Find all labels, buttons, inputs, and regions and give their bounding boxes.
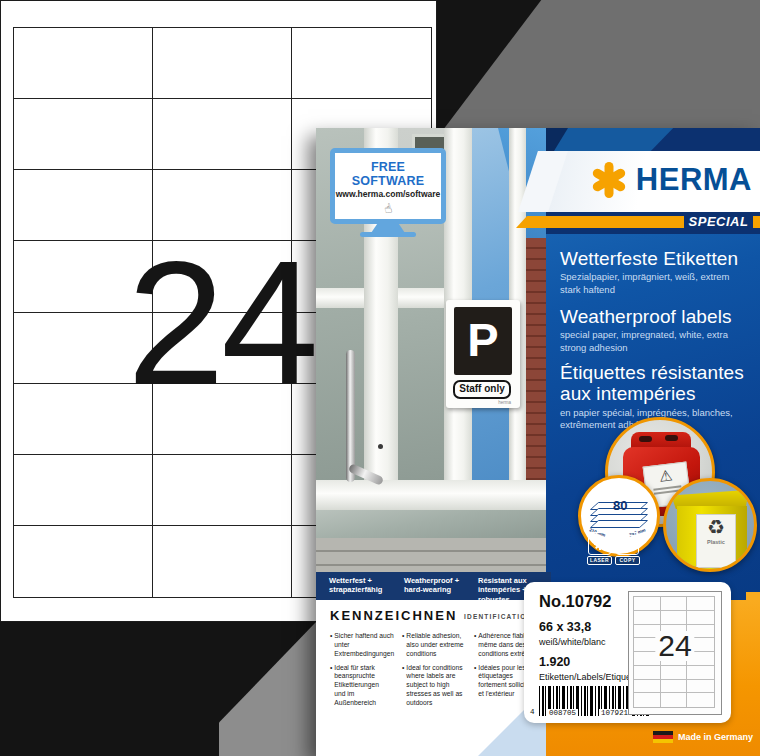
bin-label-text: Plastic [697, 539, 735, 545]
package-front: FREE SOFTWARE www.herma.com/software ☝ P… [316, 128, 760, 756]
product-shot: 24 FREE SOFTWARE www. [0, 0, 760, 756]
band-diagonal [636, 128, 760, 151]
subtitle-de-text: Spezialpapier, imprägniert, weiß, extrem… [560, 271, 738, 296]
laser-compatible-icon: LASER [587, 532, 612, 565]
german-flag-icon [653, 731, 673, 743]
hand-cursor-icon: ☝ [382, 200, 393, 216]
label-cell [634, 680, 661, 694]
orange-stripe-end [753, 216, 760, 228]
recycling-bin-circle: ♻ Plastic [663, 478, 757, 572]
keyhole [378, 444, 383, 449]
identification-column-de: •Sicher haftend auch unter Extrembedingu… [330, 632, 388, 713]
product-info-panel: No.10792 66 x 33,8 weiß/white/blanc 1.92… [524, 582, 731, 723]
door-handle [346, 350, 355, 482]
recycle-icon: ♻ [697, 515, 735, 539]
label-cell [661, 597, 688, 611]
laser-icon [588, 532, 611, 555]
band-diagonal [546, 128, 586, 151]
herma-asterisk-icon [590, 161, 628, 199]
label-cell [687, 597, 714, 611]
entrance-steps [316, 538, 546, 572]
bullet-text: Reliable adhesion, also under extreme co… [406, 632, 464, 659]
feature-de: Wetterfest + strapazierfähig [329, 576, 395, 595]
recycling-label: ♻ Plastic [696, 514, 736, 568]
copy-icon [616, 532, 639, 555]
bullet-text: Ideal for conditions where labels are su… [406, 664, 464, 708]
warning-triangle-icon: ⚠ [645, 465, 689, 486]
monitor-screen: FREE SOFTWARE www.herma.com/software ☝ [330, 148, 446, 224]
product-number: No.10792 [539, 592, 611, 611]
title-en: Weatherproof labels special paper, impre… [560, 306, 756, 354]
parking-letter: P [454, 307, 512, 375]
made-in-label: Made in Germany [678, 732, 753, 742]
label-cell [14, 526, 153, 597]
orange-corner-notch [746, 592, 760, 600]
label-cell [153, 28, 292, 99]
herma-logo: HERMA [590, 161, 752, 199]
title-en-text: Weatherproof labels [560, 306, 756, 327]
barcode-digits-right: 107921 [599, 709, 630, 717]
free-software-sign: FREE SOFTWARE www.herma.com/software ☝ [330, 148, 446, 240]
label-color: weiß/white/blanc [539, 637, 606, 647]
background-gray-bottom-left [219, 622, 316, 756]
canister-slot [665, 435, 678, 441]
free-software-title: FREE SOFTWARE [335, 160, 441, 188]
orange-stripe [516, 216, 684, 228]
glass-panel [316, 510, 546, 538]
identification-heading: KENNZEICHNEN [330, 608, 457, 623]
label-size: 66 x 33,8 [539, 620, 591, 634]
title-de: Wetterfeste Etiketten Spezialpapier, imp… [560, 248, 756, 296]
feature-en: Weatherproof + hard-wearing [404, 576, 470, 595]
label-count: 24 [127, 235, 317, 411]
label-cell [634, 597, 661, 611]
label-cell [14, 455, 153, 526]
bullet-text: Ideal für stark beanspruchte Etikettieru… [334, 664, 388, 708]
copy-compatible-icon: COPY [615, 532, 640, 565]
free-software-url: www.herma.com/software [335, 189, 441, 199]
door-crossbar [316, 480, 546, 510]
special-label: SPECIAL [685, 212, 752, 231]
identification-column-en: •Reliable adhesion, also under extreme c… [402, 632, 464, 713]
top-band [546, 128, 760, 151]
label-cell [661, 680, 688, 694]
herma-wordmark: HERMA [636, 162, 752, 198]
parking-sign: P Staff only herma [446, 300, 520, 408]
label-cell [687, 666, 714, 680]
copy-icon-label: COPY [615, 556, 640, 565]
barcode-digits-left: 008705 [547, 709, 578, 717]
label-cell [14, 99, 153, 170]
label-cell [153, 455, 292, 526]
label-quantity: 1.920 [539, 655, 570, 669]
label-cell [687, 693, 714, 707]
label-cell [634, 611, 661, 625]
sign-brand-mark: herma [498, 400, 511, 405]
features-band: Wetterfest + strapazierfähig Weatherproo… [316, 572, 551, 600]
canister-slot [639, 436, 652, 442]
title-de-text: Wetterfeste Etiketten [560, 248, 756, 269]
staff-only-label: Staff only [453, 380, 511, 399]
logo-band: HERMA [546, 151, 760, 212]
label-cell [14, 28, 153, 99]
laser-icon-label: LASER [587, 556, 612, 565]
label-cell [153, 526, 292, 597]
label-cell [634, 666, 661, 680]
sheet-preview: 24 [628, 591, 722, 715]
bullet-text: Sicher haftend auch unter Extrembedingun… [334, 632, 394, 659]
label-cell [687, 680, 714, 694]
label-cell [153, 99, 292, 170]
label-cell [661, 666, 688, 680]
background-gray-top-right [443, 0, 760, 130]
subtitle-en-text: special paper, impregnated, white, extra… [560, 329, 732, 354]
monitor-base [360, 232, 416, 237]
badge-count: 80 [613, 498, 627, 513]
identification-subheading: IDENTIFICATION [464, 613, 532, 620]
barcode-prefix: 4 [530, 708, 535, 716]
title-fr-text: Étiquettes résistantes aux intempéries [560, 362, 748, 405]
label-cell [292, 28, 431, 99]
preview-count: 24 [655, 631, 694, 661]
label-cell [661, 693, 688, 707]
label-cell [634, 693, 661, 707]
label-cell [661, 611, 688, 625]
label-cell [687, 611, 714, 625]
